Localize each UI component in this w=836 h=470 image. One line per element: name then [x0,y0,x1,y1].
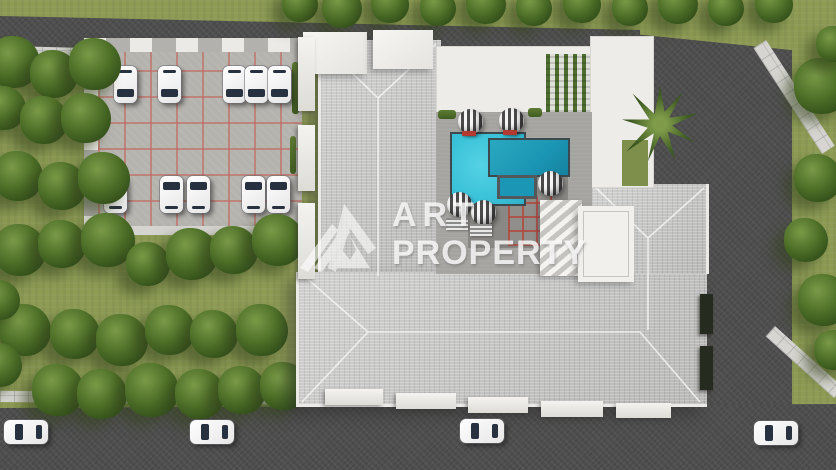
street-car [190,420,234,444]
tree [77,369,127,419]
parked-car [245,66,268,103]
watermark-logo mountain-stripes-icon [298,188,390,272]
tree [784,218,828,262]
balcony-south [541,401,603,417]
swimming-pool-deep [488,138,570,177]
tree [50,309,100,359]
balcony-south [325,389,383,405]
balcony-east [700,294,713,334]
parked-car [223,66,246,103]
tree [38,220,86,268]
tree [794,154,836,202]
tree [282,0,318,22]
tree [516,0,552,26]
parked-car [242,176,265,213]
tree [798,274,836,326]
tree [563,0,601,23]
tree [708,0,744,26]
balcony-east [700,346,713,390]
aerial-property-render: ART PROPERTY [0,0,836,470]
pool-umbrella [538,171,563,196]
parked-car [158,66,181,103]
parked-car [267,176,290,213]
parked-car [268,66,291,103]
tree [816,26,836,62]
tree [236,304,288,356]
street-car [754,421,798,445]
rooftop-box [373,30,433,69]
sun-lounger-red [462,131,476,136]
tree [96,314,148,366]
tree [420,0,456,26]
parked-car [160,176,183,213]
watermark-brand-line1: ART [392,198,480,232]
tree [78,152,130,204]
tree [61,93,111,143]
balcony-south [468,397,528,413]
tree [466,0,506,24]
parked-car [187,176,210,213]
parking-hedge [290,136,296,174]
tree [125,363,179,417]
tree [371,0,409,23]
planter [438,110,456,119]
tree [218,366,266,414]
tree [0,151,43,201]
balcony-south [616,403,671,418]
tree [755,0,793,23]
tree [658,0,698,24]
street-car [460,419,504,443]
tree [794,58,836,114]
balcony-south [396,393,456,409]
building-roof-south-wing [296,272,707,407]
tree [190,310,238,358]
watermark-brand-line2: PROPERTY [392,236,587,270]
tree [145,305,195,355]
kids-pool [497,175,537,199]
east-garden-patch [622,140,648,186]
street-car [4,420,48,444]
balcony-west [298,37,315,111]
tree [69,38,121,90]
balcony-west [298,125,315,191]
tree [252,214,304,266]
sun-lounger-red [503,130,517,135]
tree [612,0,648,26]
tree [126,242,170,286]
road-bottom [0,404,836,470]
tree [210,226,258,274]
planter [528,108,542,117]
